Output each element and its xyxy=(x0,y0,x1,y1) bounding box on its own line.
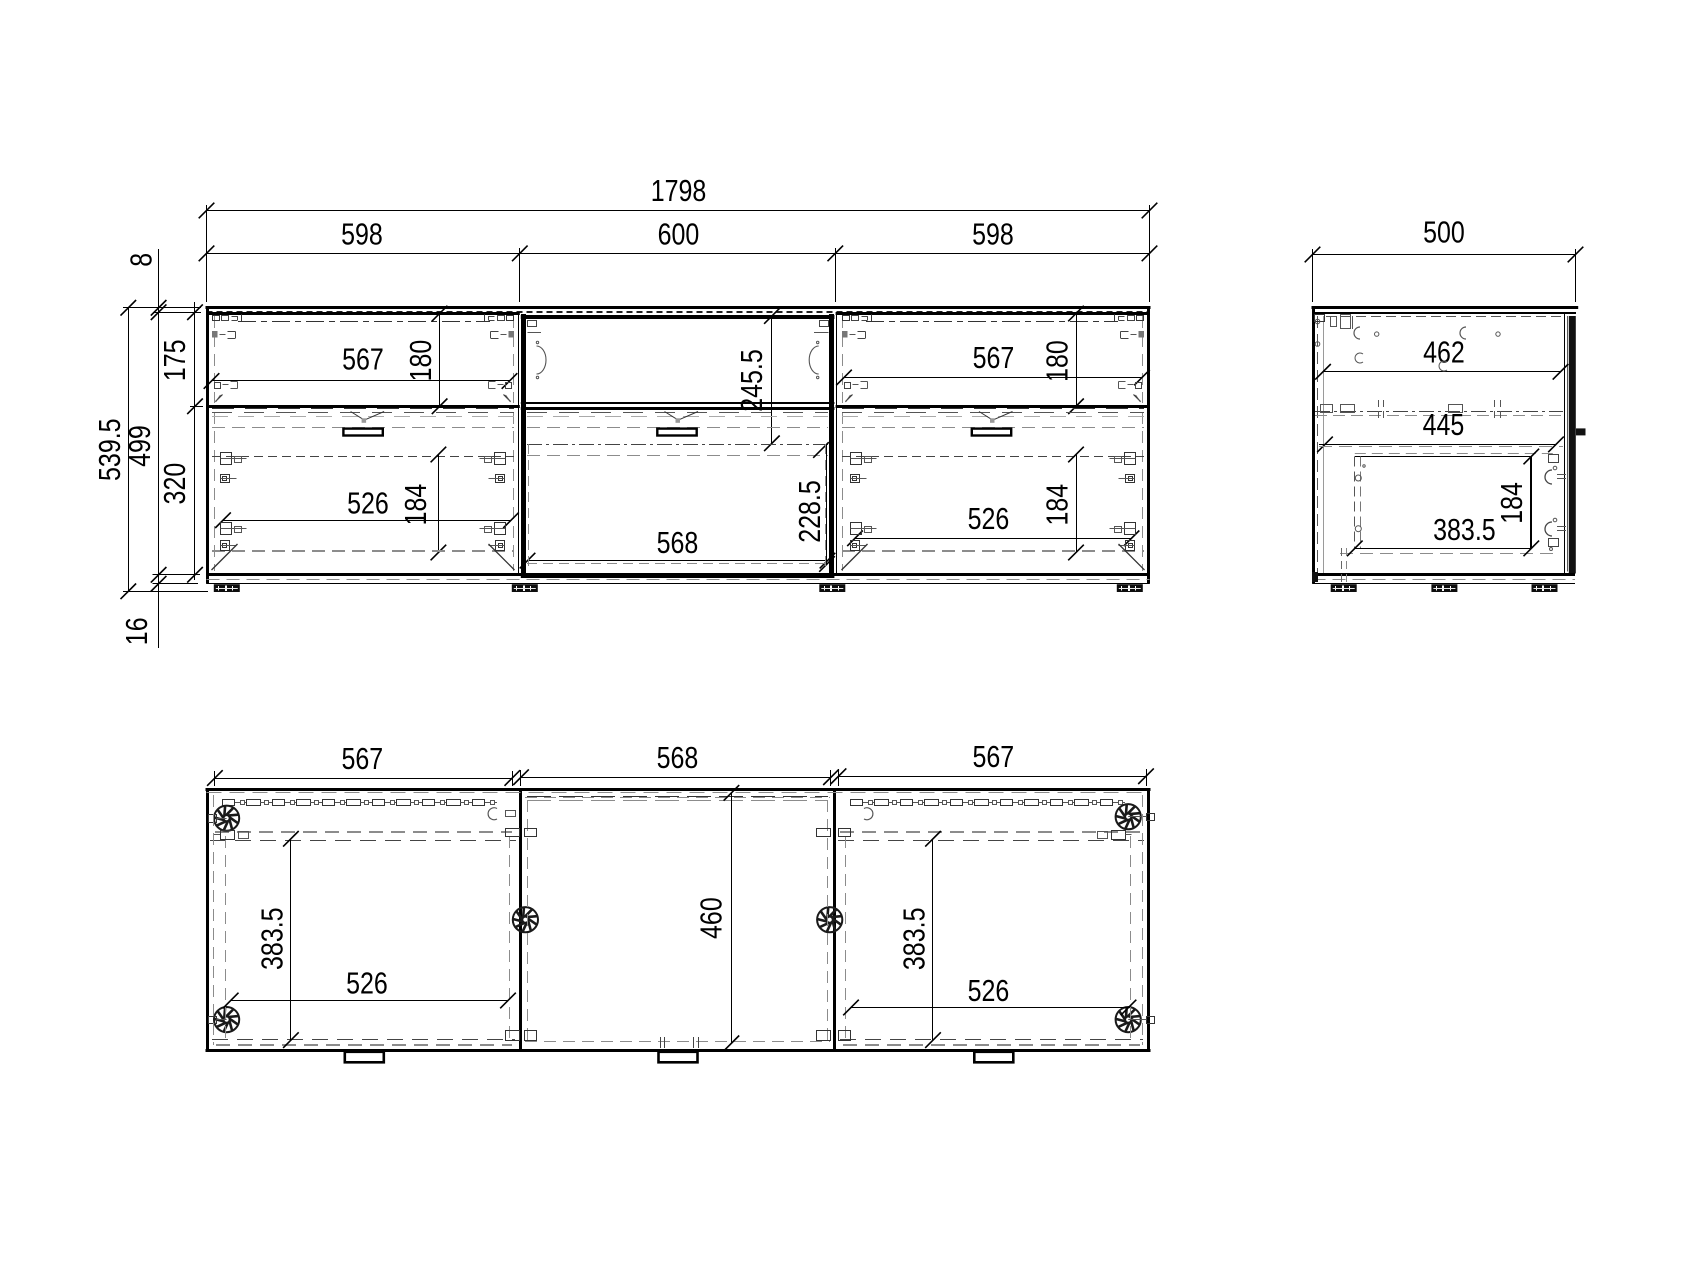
svg-text:383.5: 383.5 xyxy=(254,907,289,970)
svg-text:499: 499 xyxy=(122,425,157,467)
svg-text:567: 567 xyxy=(342,341,384,376)
svg-text:8: 8 xyxy=(124,253,159,267)
svg-text:184: 184 xyxy=(1494,482,1529,524)
svg-text:184: 184 xyxy=(1040,484,1075,526)
svg-text:567: 567 xyxy=(973,340,1015,375)
svg-text:180: 180 xyxy=(1040,340,1075,382)
svg-text:462: 462 xyxy=(1423,335,1465,370)
svg-text:460: 460 xyxy=(693,897,728,939)
svg-text:568: 568 xyxy=(657,740,699,775)
svg-text:567: 567 xyxy=(972,739,1014,774)
svg-text:175: 175 xyxy=(157,339,192,381)
svg-text:320: 320 xyxy=(157,463,192,505)
svg-text:180: 180 xyxy=(403,340,438,382)
svg-text:445: 445 xyxy=(1423,407,1465,442)
svg-text:598: 598 xyxy=(341,217,383,252)
svg-text:184: 184 xyxy=(398,484,433,526)
svg-text:1798: 1798 xyxy=(651,173,707,208)
svg-text:568: 568 xyxy=(657,525,699,560)
svg-text:500: 500 xyxy=(1423,215,1465,250)
svg-text:526: 526 xyxy=(347,486,389,521)
svg-text:383.5: 383.5 xyxy=(1433,512,1496,547)
svg-text:228.5: 228.5 xyxy=(792,480,827,543)
svg-text:600: 600 xyxy=(658,217,700,252)
svg-text:383.5: 383.5 xyxy=(897,908,932,971)
svg-text:245.5: 245.5 xyxy=(734,349,769,412)
svg-text:567: 567 xyxy=(341,741,383,776)
svg-text:526: 526 xyxy=(968,973,1010,1008)
svg-text:526: 526 xyxy=(346,966,388,1001)
svg-text:526: 526 xyxy=(968,501,1010,536)
svg-text:16: 16 xyxy=(119,617,154,645)
svg-text:598: 598 xyxy=(972,217,1014,252)
